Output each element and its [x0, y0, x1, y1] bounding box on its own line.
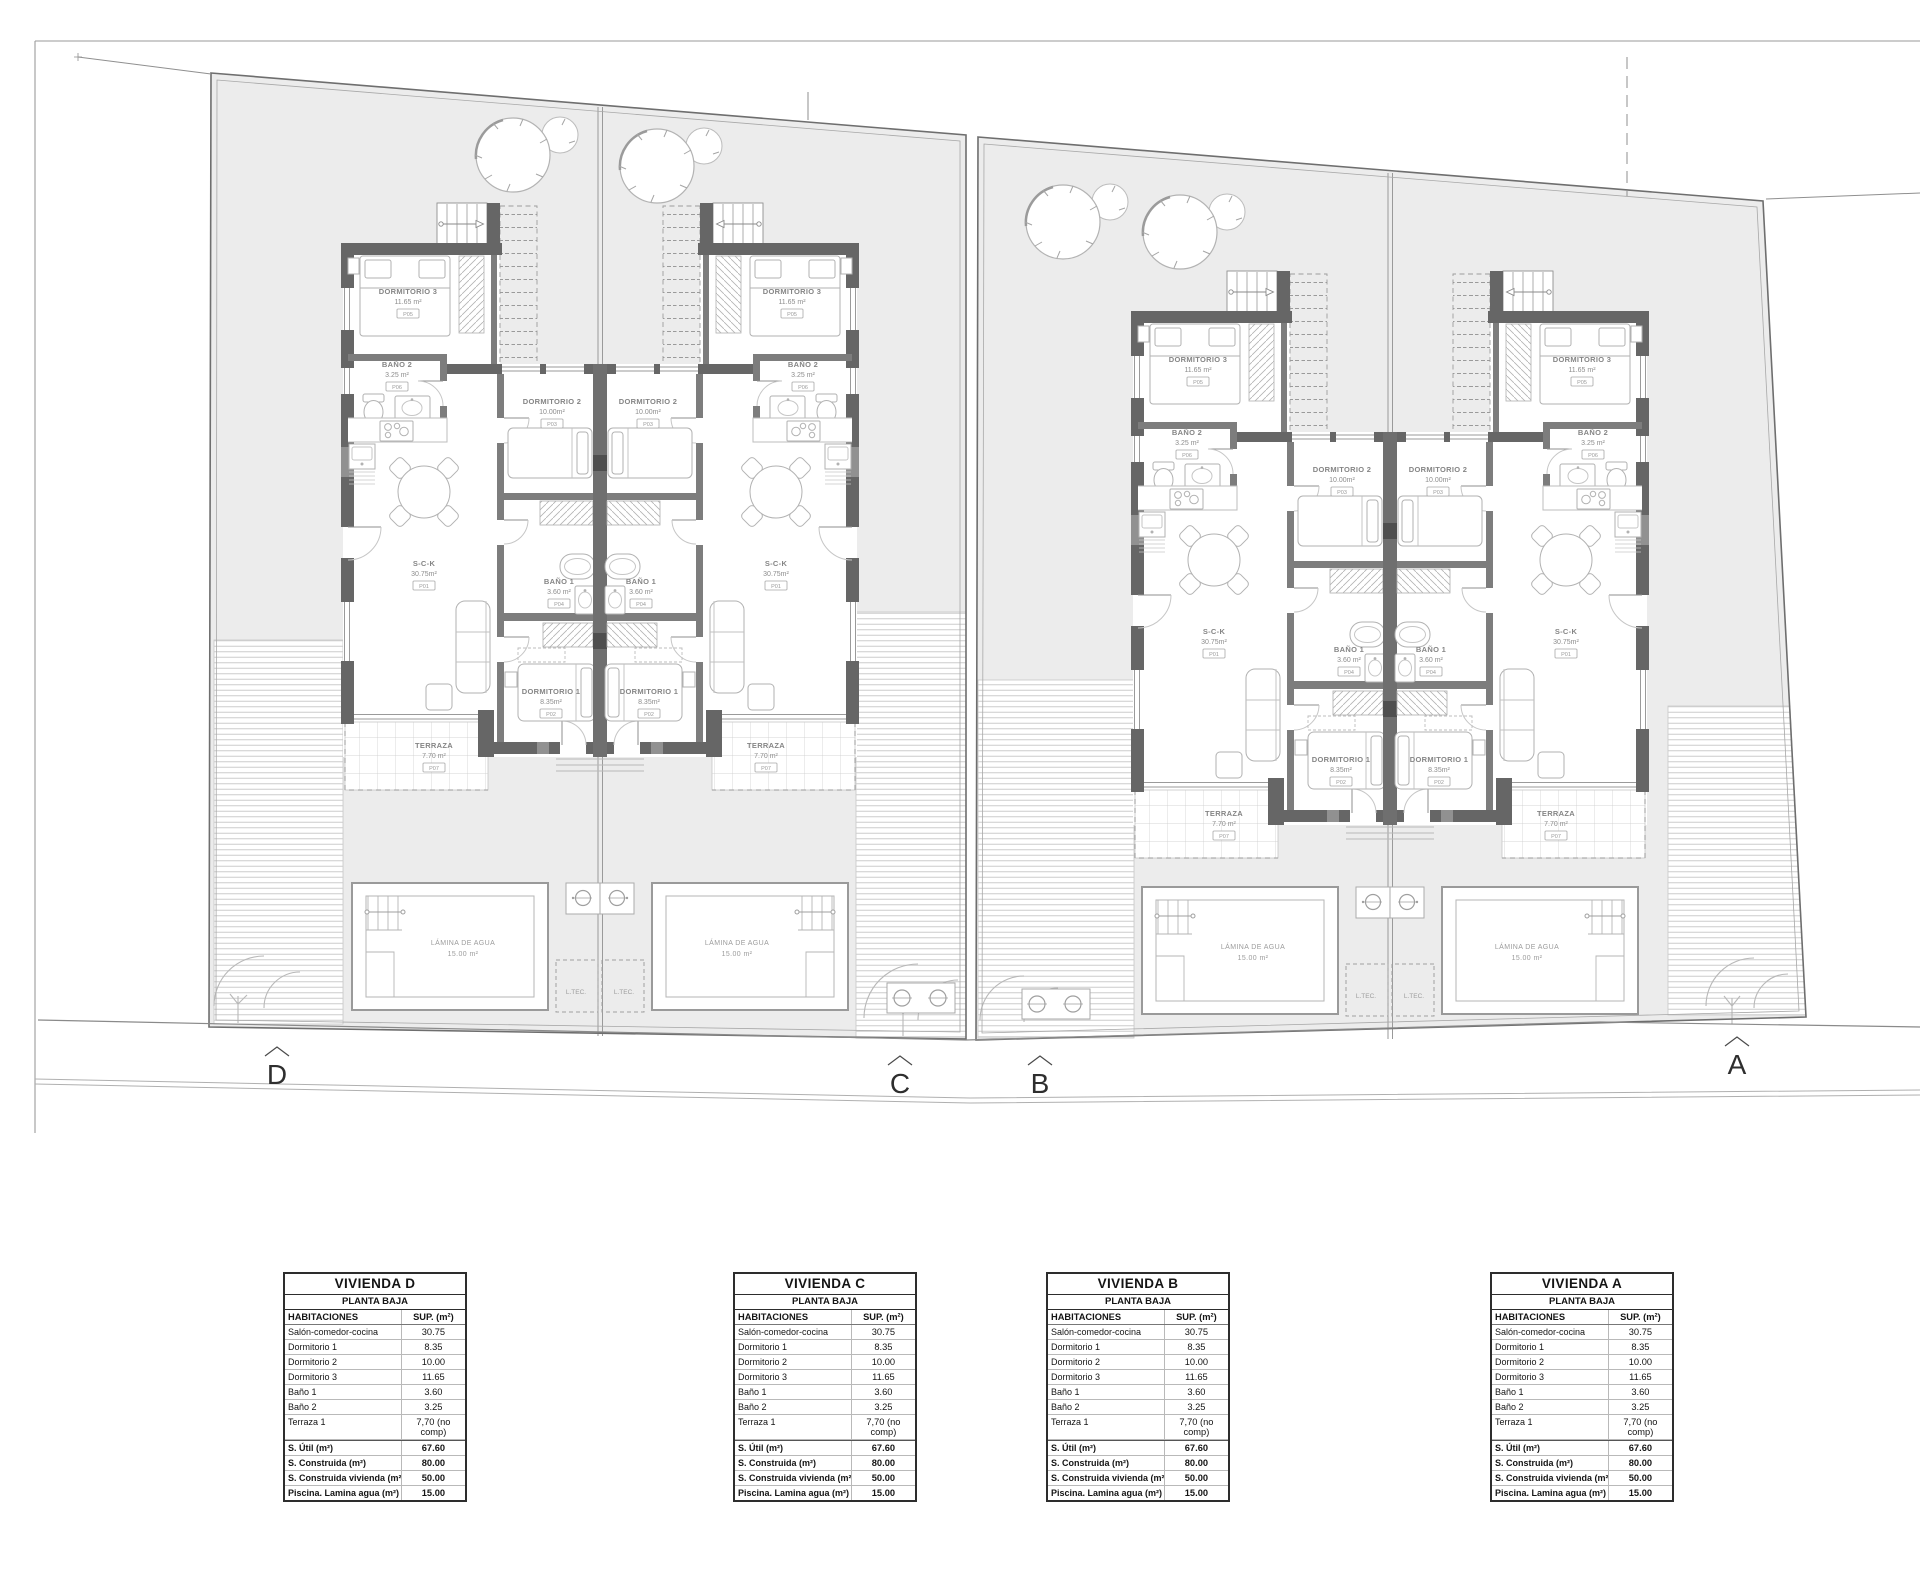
svg-text:3.25 m²: 3.25 m² — [791, 372, 815, 379]
row-label: Piscina. Lamina agua (m²) — [735, 1486, 852, 1500]
floor-plan-sheet: DORMITORIO 311.65 m²P05BAÑO 23.25 m²P06D… — [0, 0, 1920, 1571]
row-label: Terraza 1 — [735, 1415, 852, 1439]
table-row-s-construida-vivienda-m: S. Construida vivienda (m²)50.00 — [1048, 1471, 1228, 1486]
table-row-sal-n-comedor-cocina: Salón-comedor-cocina30.75 — [1492, 1325, 1672, 1340]
svg-text:B: B — [1031, 1068, 1050, 1099]
svg-text:BAÑO 1: BAÑO 1 — [1334, 645, 1364, 654]
svg-text:3.60 m²: 3.60 m² — [629, 589, 653, 596]
svg-text:DORMITORIO 1: DORMITORIO 1 — [1410, 755, 1468, 764]
svg-text:BAÑO 1: BAÑO 1 — [626, 577, 656, 586]
room-label-ba-o-1-unit-b: BAÑO 13.60 m²P04 — [1334, 645, 1364, 676]
svg-text:S-C-K: S-C-K — [765, 559, 788, 568]
row-value: 11.65 — [852, 1370, 915, 1384]
row-label: S. Útil (m²) — [285, 1441, 402, 1455]
column-header: SUP. (m²) — [852, 1310, 915, 1324]
svg-text:P01: P01 — [771, 584, 781, 590]
table-row-s-til-m: S. Útil (m²)67.60 — [735, 1440, 915, 1456]
svg-text:BAÑO 2: BAÑO 2 — [788, 360, 818, 369]
table-row-terraza-1: Terraza 17,70 (no comp) — [1492, 1415, 1672, 1440]
row-label: Piscina. Lamina agua (m²) — [1048, 1486, 1165, 1500]
row-label: Baño 2 — [285, 1400, 402, 1414]
row-value: 50.00 — [1165, 1471, 1228, 1485]
table-title: VIVIENDA C — [735, 1274, 915, 1295]
section-markers: DCBA — [265, 1037, 1749, 1099]
svg-text:LÁMINA DE AGUA: LÁMINA DE AGUA — [1495, 942, 1559, 951]
column-header: HABITACIONES — [285, 1310, 402, 1324]
row-value: 67.60 — [1165, 1441, 1228, 1455]
table-row-piscina-lamina-agua-m: Piscina. Lamina agua (m²)15.00 — [285, 1486, 465, 1500]
section-marker-c: C — [888, 1056, 912, 1099]
svg-text:DORMITORIO 1: DORMITORIO 1 — [620, 687, 678, 696]
row-value: 15.00 — [402, 1486, 465, 1500]
svg-text:DORMITORIO 2: DORMITORIO 2 — [619, 397, 677, 406]
row-label: Terraza 1 — [1492, 1415, 1609, 1439]
row-label: Salón-comedor-cocina — [1048, 1325, 1165, 1339]
table-subtitle: PLANTA BAJA — [1048, 1295, 1228, 1310]
table-subtitle: PLANTA BAJA — [1492, 1295, 1672, 1310]
table-row-ba-o-2: Baño 23.25 — [735, 1400, 915, 1415]
row-value: 3.60 — [402, 1385, 465, 1399]
table-row-piscina-lamina-agua-m: Piscina. Lamina agua (m²)15.00 — [735, 1486, 915, 1500]
room-label-ba-o-1-unit-d: BAÑO 13.60 m²P04 — [544, 577, 574, 608]
tech-room-label-unit-b: L.TEC. — [1356, 993, 1376, 1000]
row-label: Dormitorio 3 — [1048, 1370, 1165, 1384]
row-value: 80.00 — [1165, 1456, 1228, 1470]
svg-text:DORMITORIO 2: DORMITORIO 2 — [1313, 465, 1371, 474]
area-table-vivienda-a: VIVIENDA APLANTA BAJAHABITACIONESSUP. (m… — [1490, 1272, 1674, 1502]
table-row-dormitorio-3: Dormitorio 311.65 — [285, 1370, 465, 1385]
svg-text:BAÑO 2: BAÑO 2 — [1578, 428, 1608, 437]
svg-text:7.70 m²: 7.70 m² — [754, 753, 778, 760]
row-value: 50.00 — [402, 1471, 465, 1485]
table-row-s-construida-vivienda-m: S. Construida vivienda (m²)50.00 — [1492, 1471, 1672, 1486]
row-value: 11.65 — [1165, 1370, 1228, 1384]
svg-text:15.00 m²: 15.00 m² — [1238, 955, 1269, 962]
svg-text:S-C-K: S-C-K — [1203, 627, 1226, 636]
svg-text:P03: P03 — [1337, 490, 1347, 496]
svg-text:P05: P05 — [403, 312, 413, 318]
section-marker-d: D — [265, 1047, 289, 1090]
table-row-ba-o-1: Baño 13.60 — [1492, 1385, 1672, 1400]
svg-text:P03: P03 — [1433, 490, 1443, 496]
room-label-s-c-k-unit-c: S-C-K30.75m²P01 — [763, 559, 789, 590]
svg-text:P02: P02 — [1336, 780, 1346, 786]
row-value: 50.00 — [1609, 1471, 1672, 1485]
row-label: Baño 2 — [1048, 1400, 1165, 1414]
svg-text:8.35m²: 8.35m² — [638, 699, 660, 706]
svg-text:BAÑO 2: BAÑO 2 — [382, 360, 412, 369]
room-label-ba-o-1-unit-a: BAÑO 13.60 m²P04 — [1416, 645, 1446, 676]
room-label-ba-o-2-unit-a: BAÑO 23.25 m²P06 — [1578, 428, 1608, 459]
svg-text:P03: P03 — [643, 422, 653, 428]
table-row-dormitorio-1: Dormitorio 18.35 — [1048, 1340, 1228, 1355]
svg-text:30.75m²: 30.75m² — [1553, 639, 1579, 646]
room-label-ba-o-1-unit-c: BAÑO 13.60 m²P04 — [626, 577, 656, 608]
svg-text:P02: P02 — [1434, 780, 1444, 786]
table-row-sal-n-comedor-cocina: Salón-comedor-cocina30.75 — [285, 1325, 465, 1340]
column-header: SUP. (m²) — [1165, 1310, 1228, 1324]
svg-text:P04: P04 — [636, 602, 646, 608]
row-value: 8.35 — [1609, 1340, 1672, 1354]
row-value: 3.60 — [1609, 1385, 1672, 1399]
table-row-s-til-m: S. Útil (m²)67.60 — [1048, 1440, 1228, 1456]
svg-text:TERRAZA: TERRAZA — [1537, 809, 1575, 818]
table-row-sal-n-comedor-cocina: Salón-comedor-cocina30.75 — [735, 1325, 915, 1340]
svg-text:S-C-K: S-C-K — [1555, 627, 1578, 636]
svg-text:LÁMINA DE AGUA: LÁMINA DE AGUA — [1221, 942, 1285, 951]
row-value: 10.00 — [852, 1355, 915, 1369]
row-label: S. Construida (m²) — [1492, 1456, 1609, 1470]
svg-text:LÁMINA DE AGUA: LÁMINA DE AGUA — [705, 938, 769, 947]
row-label: Salón-comedor-cocina — [735, 1325, 852, 1339]
tech-room-label-unit-c: L.TEC. — [614, 989, 634, 996]
row-label: S. Útil (m²) — [735, 1441, 852, 1455]
svg-text:8.35m²: 8.35m² — [1330, 767, 1352, 774]
row-value: 30.75 — [852, 1325, 915, 1339]
row-label: Dormitorio 3 — [285, 1370, 402, 1384]
svg-text:BAÑO 1: BAÑO 1 — [1416, 645, 1446, 654]
svg-text:15.00 m²: 15.00 m² — [722, 951, 753, 958]
column-header: SUP. (m²) — [402, 1310, 465, 1324]
row-label: Baño 1 — [1492, 1385, 1609, 1399]
row-label: Baño 1 — [285, 1385, 402, 1399]
row-label: S. Construida (m²) — [285, 1456, 402, 1470]
row-value: 3.25 — [1165, 1400, 1228, 1414]
svg-text:S-C-K: S-C-K — [413, 559, 436, 568]
table-row-s-til-m: S. Útil (m²)67.60 — [285, 1440, 465, 1456]
svg-text:P05: P05 — [1577, 380, 1587, 386]
svg-text:15.00 m²: 15.00 m² — [1512, 955, 1543, 962]
row-value: 80.00 — [1609, 1456, 1672, 1470]
row-label: Dormitorio 2 — [735, 1355, 852, 1369]
row-label: Baño 2 — [1492, 1400, 1609, 1414]
row-value: 3.25 — [1609, 1400, 1672, 1414]
table-row-ba-o-1: Baño 13.60 — [1048, 1385, 1228, 1400]
svg-text:10.00m²: 10.00m² — [1425, 477, 1451, 484]
row-label: Dormitorio 1 — [1492, 1340, 1609, 1354]
row-label: S. Construida vivienda (m²) — [285, 1471, 402, 1485]
row-value: 10.00 — [1165, 1355, 1228, 1369]
svg-text:3.60 m²: 3.60 m² — [1419, 657, 1443, 664]
row-label: Dormitorio 1 — [735, 1340, 852, 1354]
svg-text:LÁMINA DE AGUA: LÁMINA DE AGUA — [431, 938, 495, 947]
table-row-dormitorio-3: Dormitorio 311.65 — [1492, 1370, 1672, 1385]
svg-text:P06: P06 — [798, 385, 808, 391]
row-value: 80.00 — [402, 1456, 465, 1470]
room-label-ba-o-2-unit-d: BAÑO 23.25 m²P06 — [382, 360, 412, 391]
table-row-terraza-1: Terraza 17,70 (no comp) — [735, 1415, 915, 1440]
svg-text:BAÑO 1: BAÑO 1 — [544, 577, 574, 586]
table-row-dormitorio-1: Dormitorio 18.35 — [285, 1340, 465, 1355]
row-label: Piscina. Lamina agua (m²) — [285, 1486, 402, 1500]
table-row-dormitorio-1: Dormitorio 18.35 — [1492, 1340, 1672, 1355]
table-title: VIVIENDA D — [285, 1274, 465, 1295]
svg-text:P05: P05 — [787, 312, 797, 318]
table-row-terraza-1: Terraza 17,70 (no comp) — [1048, 1415, 1228, 1440]
table-row-piscina-lamina-agua-m: Piscina. Lamina agua (m²)15.00 — [1492, 1486, 1672, 1500]
svg-text:11.65 m²: 11.65 m² — [1184, 367, 1212, 374]
svg-text:P04: P04 — [1344, 670, 1354, 676]
svg-text:3.60 m²: 3.60 m² — [547, 589, 571, 596]
row-value: 15.00 — [1165, 1486, 1228, 1500]
area-table-vivienda-c: VIVIENDA CPLANTA BAJAHABITACIONESSUP. (m… — [733, 1272, 917, 1502]
svg-text:DORMITORIO 2: DORMITORIO 2 — [1409, 465, 1467, 474]
section-marker-b: B — [1028, 1056, 1052, 1099]
row-value: 67.60 — [852, 1441, 915, 1455]
table-row-ba-o-2: Baño 23.25 — [1492, 1400, 1672, 1415]
table-row-dormitorio-3: Dormitorio 311.65 — [1048, 1370, 1228, 1385]
svg-text:P05: P05 — [1193, 380, 1203, 386]
column-header: HABITACIONES — [1048, 1310, 1165, 1324]
table-row-piscina-lamina-agua-m: Piscina. Lamina agua (m²)15.00 — [1048, 1486, 1228, 1500]
column-header: HABITACIONES — [1492, 1310, 1609, 1324]
room-label-s-c-k-unit-d: S-C-K30.75m²P01 — [411, 559, 437, 590]
table-row-s-construida-m: S. Construida (m²)80.00 — [285, 1456, 465, 1471]
row-label: S. Construida (m²) — [1048, 1456, 1165, 1470]
room-label-s-c-k-unit-a: S-C-K30.75m²P01 — [1553, 627, 1579, 658]
row-value: 11.65 — [402, 1370, 465, 1384]
row-value: 8.35 — [402, 1340, 465, 1354]
table-row-ba-o-2: Baño 23.25 — [285, 1400, 465, 1415]
table-row-sal-n-comedor-cocina: Salón-comedor-cocina30.75 — [1048, 1325, 1228, 1340]
row-label: S. Construida vivienda (m²) — [1492, 1471, 1609, 1485]
table-row-s-construida-vivienda-m: S. Construida vivienda (m²)50.00 — [735, 1471, 915, 1486]
table-title: VIVIENDA B — [1048, 1274, 1228, 1295]
svg-text:15.00 m²: 15.00 m² — [448, 951, 479, 958]
table-header: HABITACIONESSUP. (m²) — [735, 1310, 915, 1325]
area-table-vivienda-d: VIVIENDA DPLANTA BAJAHABITACIONESSUP. (m… — [283, 1272, 467, 1502]
table-title: VIVIENDA A — [1492, 1274, 1672, 1295]
row-value: 30.75 — [1609, 1325, 1672, 1339]
svg-text:30.75m²: 30.75m² — [763, 571, 789, 578]
table-row-dormitorio-3: Dormitorio 311.65 — [735, 1370, 915, 1385]
column-header: HABITACIONES — [735, 1310, 852, 1324]
row-label: Dormitorio 3 — [1492, 1370, 1609, 1384]
row-value: 7,70 (no comp) — [402, 1415, 465, 1439]
table-row-s-construida-vivienda-m: S. Construida vivienda (m²)50.00 — [285, 1471, 465, 1486]
svg-text:3.25 m²: 3.25 m² — [1581, 440, 1605, 447]
row-value: 7,70 (no comp) — [852, 1415, 915, 1439]
svg-text:BAÑO 2: BAÑO 2 — [1172, 428, 1202, 437]
svg-text:7.70 m²: 7.70 m² — [1544, 821, 1568, 828]
room-label-ba-o-2-unit-c: BAÑO 23.25 m²P06 — [788, 360, 818, 391]
svg-text:TERRAZA: TERRAZA — [1205, 809, 1243, 818]
row-value: 67.60 — [402, 1441, 465, 1455]
svg-text:P02: P02 — [644, 712, 654, 718]
table-row-s-construida-m: S. Construida (m²)80.00 — [735, 1456, 915, 1471]
row-value: 15.00 — [1609, 1486, 1672, 1500]
row-value: 67.60 — [1609, 1441, 1672, 1455]
svg-text:7.70 m²: 7.70 m² — [422, 753, 446, 760]
svg-text:DORMITORIO 1: DORMITORIO 1 — [1312, 755, 1370, 764]
row-label: Terraza 1 — [285, 1415, 402, 1439]
svg-text:3.25 m²: 3.25 m² — [385, 372, 409, 379]
table-row-s-construida-m: S. Construida (m²)80.00 — [1048, 1456, 1228, 1471]
row-label: Baño 1 — [1048, 1385, 1165, 1399]
svg-text:DORMITORIO 3: DORMITORIO 3 — [1169, 355, 1227, 364]
svg-text:P07: P07 — [429, 766, 439, 772]
table-row-ba-o-1: Baño 13.60 — [285, 1385, 465, 1400]
svg-text:TERRAZA: TERRAZA — [415, 741, 453, 750]
svg-text:P06: P06 — [1588, 453, 1598, 459]
svg-text:DORMITORIO 2: DORMITORIO 2 — [523, 397, 581, 406]
svg-text:DORMITORIO 3: DORMITORIO 3 — [763, 287, 821, 296]
svg-text:DORMITORIO 1: DORMITORIO 1 — [522, 687, 580, 696]
tech-room-label-unit-d: L.TEC. — [566, 989, 586, 996]
table-subtitle: PLANTA BAJA — [285, 1295, 465, 1310]
row-label: S. Construida (m²) — [735, 1456, 852, 1470]
svg-text:P01: P01 — [419, 584, 429, 590]
row-value: 50.00 — [852, 1471, 915, 1485]
svg-text:3.25 m²: 3.25 m² — [1175, 440, 1199, 447]
row-value: 30.75 — [402, 1325, 465, 1339]
svg-text:P06: P06 — [392, 385, 402, 391]
table-row-dormitorio-2: Dormitorio 210.00 — [1048, 1355, 1228, 1370]
row-value: 8.35 — [852, 1340, 915, 1354]
svg-text:8.35m²: 8.35m² — [1428, 767, 1450, 774]
row-label: Dormitorio 2 — [1492, 1355, 1609, 1369]
table-subtitle: PLANTA BAJA — [735, 1295, 915, 1310]
svg-text:P07: P07 — [1551, 834, 1561, 840]
svg-text:10.00m²: 10.00m² — [539, 409, 565, 416]
row-label: S. Construida vivienda (m²) — [735, 1471, 852, 1485]
svg-text:P07: P07 — [1219, 834, 1229, 840]
svg-text:P06: P06 — [1182, 453, 1192, 459]
svg-text:30.75m²: 30.75m² — [411, 571, 437, 578]
svg-text:7.70 m²: 7.70 m² — [1212, 821, 1236, 828]
table-row-dormitorio-1: Dormitorio 18.35 — [735, 1340, 915, 1355]
row-label: Salón-comedor-cocina — [1492, 1325, 1609, 1339]
table-row-dormitorio-2: Dormitorio 210.00 — [285, 1355, 465, 1370]
column-header: SUP. (m²) — [1609, 1310, 1672, 1324]
row-value: 30.75 — [1165, 1325, 1228, 1339]
svg-text:P02: P02 — [546, 712, 556, 718]
svg-text:8.35m²: 8.35m² — [540, 699, 562, 706]
svg-text:P04: P04 — [554, 602, 564, 608]
svg-text:TERRAZA: TERRAZA — [747, 741, 785, 750]
row-label: Dormitorio 2 — [1048, 1355, 1165, 1369]
svg-text:C: C — [890, 1068, 910, 1099]
room-label-ba-o-2-unit-b: BAÑO 23.25 m²P06 — [1172, 428, 1202, 459]
svg-text:3.60 m²: 3.60 m² — [1337, 657, 1361, 664]
svg-text:11.65 m²: 11.65 m² — [778, 299, 806, 306]
row-value: 11.65 — [1609, 1370, 1672, 1384]
row-value: 10.00 — [1609, 1355, 1672, 1369]
row-label: Baño 2 — [735, 1400, 852, 1414]
row-label: Baño 1 — [735, 1385, 852, 1399]
svg-text:DORMITORIO 3: DORMITORIO 3 — [379, 287, 437, 296]
tech-room-label-unit-a: L.TEC. — [1404, 993, 1424, 1000]
svg-text:11.65 m²: 11.65 m² — [1568, 367, 1596, 374]
row-value: 7,70 (no comp) — [1609, 1415, 1672, 1439]
row-value: 10.00 — [402, 1355, 465, 1369]
row-value: 3.25 — [852, 1400, 915, 1414]
svg-text:A: A — [1728, 1049, 1747, 1080]
svg-text:D: D — [267, 1059, 287, 1090]
row-label: Terraza 1 — [1048, 1415, 1165, 1439]
row-label: S. Útil (m²) — [1048, 1441, 1165, 1455]
svg-text:11.65 m²: 11.65 m² — [394, 299, 422, 306]
row-value: 3.60 — [852, 1385, 915, 1399]
table-header: HABITACIONESSUP. (m²) — [285, 1310, 465, 1325]
row-value: 3.60 — [1165, 1385, 1228, 1399]
row-label: Piscina. Lamina agua (m²) — [1492, 1486, 1609, 1500]
table-row-terraza-1: Terraza 17,70 (no comp) — [285, 1415, 465, 1440]
row-value: 3.25 — [402, 1400, 465, 1414]
row-label: Dormitorio 1 — [1048, 1340, 1165, 1354]
svg-text:10.00m²: 10.00m² — [1329, 477, 1355, 484]
svg-text:DORMITORIO 3: DORMITORIO 3 — [1553, 355, 1611, 364]
svg-text:P03: P03 — [547, 422, 557, 428]
table-header: HABITACIONESSUP. (m²) — [1492, 1310, 1672, 1325]
row-label: Dormitorio 2 — [285, 1355, 402, 1369]
room-label-s-c-k-unit-b: S-C-K30.75m²P01 — [1201, 627, 1227, 658]
row-label: S. Construida vivienda (m²) — [1048, 1471, 1165, 1485]
svg-text:10.00m²: 10.00m² — [635, 409, 661, 416]
svg-text:P01: P01 — [1561, 652, 1571, 658]
area-table-vivienda-b: VIVIENDA BPLANTA BAJAHABITACIONESSUP. (m… — [1046, 1272, 1230, 1502]
table-row-s-construida-m: S. Construida (m²)80.00 — [1492, 1456, 1672, 1471]
svg-text:30.75m²: 30.75m² — [1201, 639, 1227, 646]
row-value: 7,70 (no comp) — [1165, 1415, 1228, 1439]
table-row-ba-o-2: Baño 23.25 — [1048, 1400, 1228, 1415]
svg-text:P07: P07 — [761, 766, 771, 772]
svg-text:P01: P01 — [1209, 652, 1219, 658]
table-row-dormitorio-2: Dormitorio 210.00 — [735, 1355, 915, 1370]
row-label: S. Útil (m²) — [1492, 1441, 1609, 1455]
row-label: Dormitorio 3 — [735, 1370, 852, 1384]
row-label: Salón-comedor-cocina — [285, 1325, 402, 1339]
svg-text:P04: P04 — [1426, 670, 1436, 676]
table-row-s-til-m: S. Útil (m²)67.60 — [1492, 1440, 1672, 1456]
row-value: 15.00 — [852, 1486, 915, 1500]
table-row-dormitorio-2: Dormitorio 210.00 — [1492, 1355, 1672, 1370]
row-label: Dormitorio 1 — [285, 1340, 402, 1354]
table-row-ba-o-1: Baño 13.60 — [735, 1385, 915, 1400]
table-header: HABITACIONESSUP. (m²) — [1048, 1310, 1228, 1325]
row-value: 80.00 — [852, 1456, 915, 1470]
section-marker-a: A — [1725, 1037, 1749, 1080]
row-value: 8.35 — [1165, 1340, 1228, 1354]
